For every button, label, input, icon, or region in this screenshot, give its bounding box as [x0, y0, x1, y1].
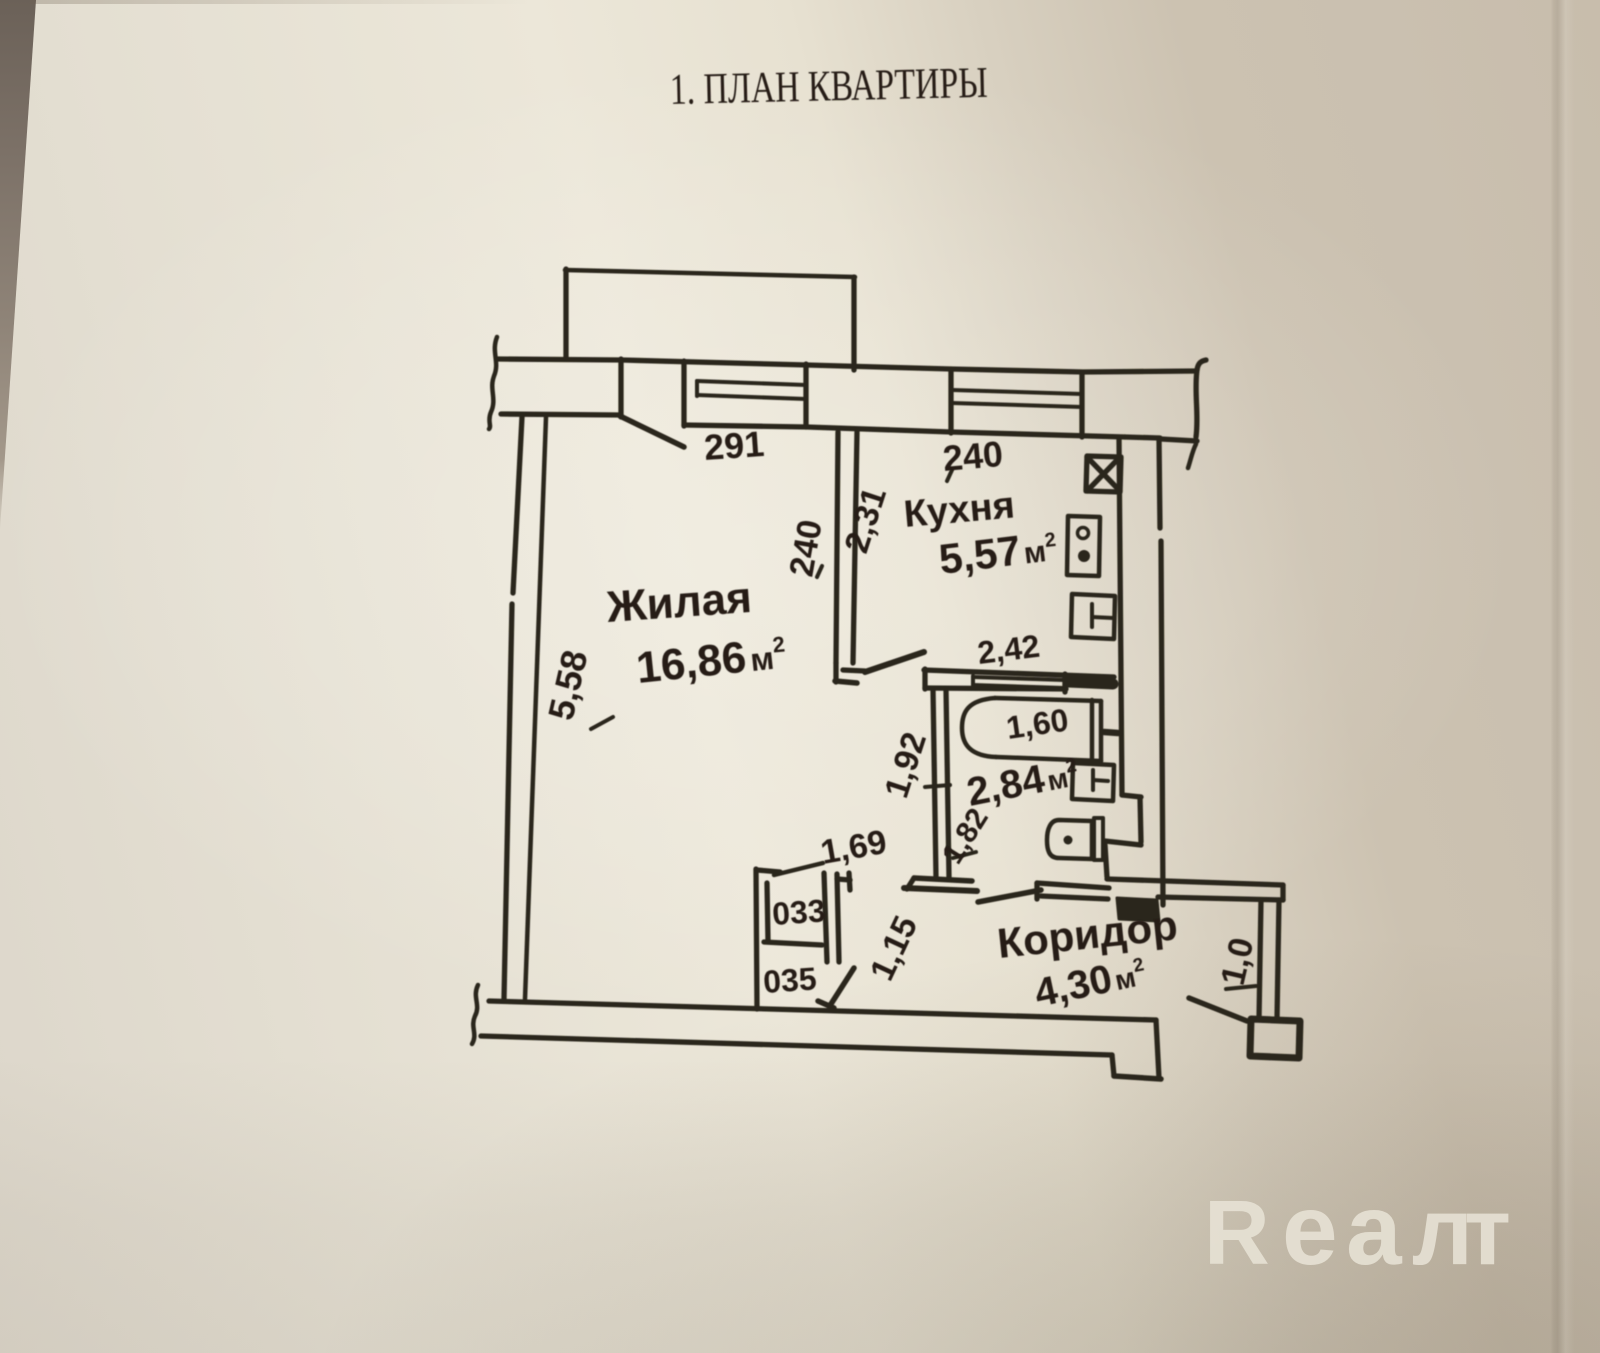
svg-text:1. ПЛАН КВАРТИРЫ: 1. ПЛАН КВАРТИРЫ: [669, 58, 988, 114]
svg-text:291: 291: [703, 423, 766, 468]
svg-text:т: т: [1464, 1178, 1511, 1285]
svg-text:1,0: 1,0: [1214, 934, 1262, 989]
svg-text:1,69: 1,69: [818, 823, 890, 872]
svg-text:035: 035: [762, 960, 818, 1000]
svg-text:1,82: 1,82: [936, 803, 995, 870]
svg-text:16,86м2: 16,86м2: [634, 629, 788, 693]
svg-text:1,15: 1,15: [863, 910, 925, 986]
svg-text:Коридор: Коридор: [995, 901, 1180, 967]
svg-text:1,60: 1,60: [1004, 702, 1071, 746]
svg-text:1,92: 1,92: [877, 728, 934, 803]
svg-text:Жилая: Жилая: [604, 573, 753, 632]
svg-text:2,84м2: 2,84м2: [963, 750, 1081, 815]
svg-text:2,31: 2,31: [837, 483, 894, 558]
svg-text:033: 033: [771, 892, 827, 932]
svg-text:R: R: [1204, 1183, 1270, 1284]
svg-text:a: a: [1346, 1174, 1403, 1286]
svg-text:5,58: 5,58: [540, 646, 596, 724]
svg-text:e: e: [1282, 1174, 1338, 1286]
svg-text:2,42: 2,42: [975, 628, 1041, 671]
svg-text:240: 240: [782, 517, 829, 579]
svg-text:240: 240: [941, 433, 1004, 479]
